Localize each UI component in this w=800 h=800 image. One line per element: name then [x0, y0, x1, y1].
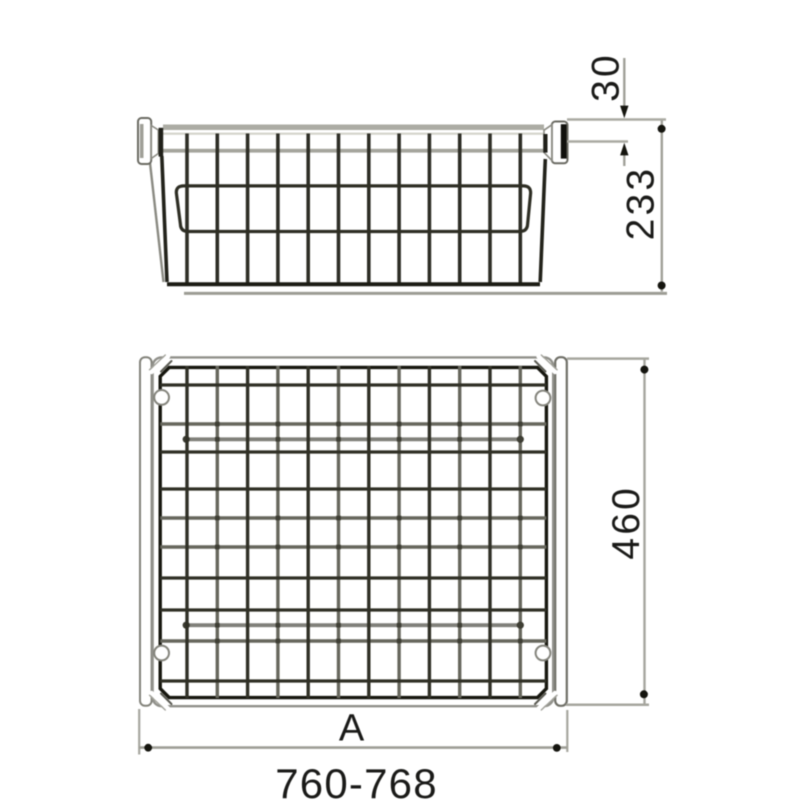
svg-text:760-768: 760-768 — [275, 760, 438, 800]
svg-text:A: A — [339, 707, 365, 749]
svg-text:233: 233 — [619, 166, 662, 241]
svg-text:30: 30 — [584, 52, 627, 102]
svg-text:460: 460 — [605, 485, 648, 560]
